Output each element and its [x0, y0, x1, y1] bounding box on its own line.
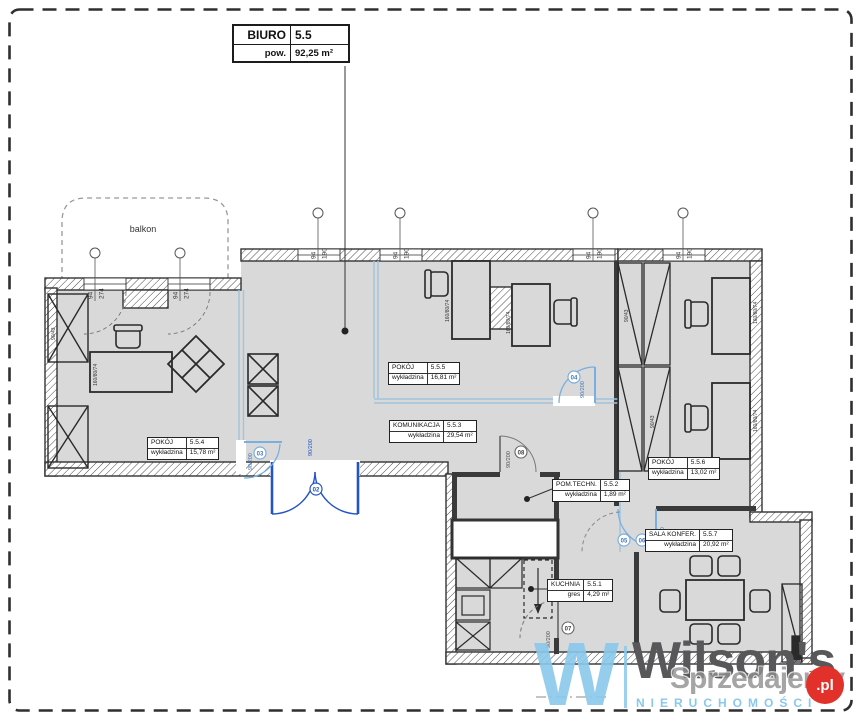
shaft — [452, 520, 558, 558]
room-label-554: POKÓJ 5.5.4 wykładzina 15,78 m² — [147, 437, 219, 460]
svg-text:160/80/74: 160/80/74 — [753, 302, 759, 324]
title-area-label: pow. — [234, 45, 291, 61]
watermark-monogram: W — [534, 630, 619, 720]
watermark-divider — [624, 646, 627, 708]
svg-text:90/43: 90/43 — [650, 415, 656, 428]
svg-text:190: 190 — [687, 248, 694, 259]
room-label-551: KUCHNIA 5.5.1 gres 4,29 m² — [547, 579, 613, 602]
svg-text:90/43: 90/43 — [624, 309, 630, 322]
balcony: balkon — [62, 198, 228, 290]
svg-text:160/80/74: 160/80/74 — [506, 312, 512, 334]
title-area-value: 92,25 m² — [291, 45, 348, 61]
room-label-556: POKÓJ 5.5.6 wykładzina 13,02 m² — [648, 457, 720, 480]
room-label-553: KOMUNIKACJA 5.5.3 wykładzina 29,54 m² — [389, 420, 477, 443]
room-label-555: POKÓJ 5.5.5 wykładzina 16,81 m² — [388, 362, 460, 385]
svg-text:94: 94 — [173, 291, 180, 299]
svg-text:90/200: 90/200 — [248, 453, 254, 470]
svg-text:190: 190 — [322, 248, 329, 259]
svg-text:08: 08 — [518, 451, 525, 457]
svg-text:190: 190 — [404, 248, 411, 259]
svg-text:160/80/74: 160/80/74 — [93, 364, 99, 386]
svg-text:90/200: 90/200 — [506, 451, 512, 468]
svg-text:160/80/74: 160/80/74 — [753, 410, 759, 432]
room-label-557: SALA KONFER. 5.5.7 wykładzina 20,92 m² — [645, 529, 733, 552]
title-name: BIURO — [234, 26, 291, 45]
svg-text:90/200: 90/200 — [580, 381, 586, 398]
svg-text:90/200: 90/200 — [308, 439, 314, 456]
svg-text:94: 94 — [586, 251, 593, 259]
svg-text:274: 274 — [184, 288, 191, 299]
balcony-label: balkon — [130, 224, 157, 234]
title-number: 5.5 — [291, 26, 348, 45]
svg-text:04: 04 — [571, 376, 578, 382]
floor-plan-page: balkon — [0, 0, 861, 720]
svg-text:90/43: 90/43 — [51, 327, 57, 340]
svg-text:274: 274 — [99, 288, 106, 299]
svg-text:190: 190 — [597, 248, 604, 259]
svg-text:94: 94 — [88, 291, 95, 299]
svg-text:05: 05 — [621, 539, 628, 545]
svg-text:160/80/74: 160/80/74 — [445, 300, 451, 322]
svg-text:94: 94 — [393, 251, 400, 259]
room-label-552: POM.TECHN. 5.5.2 wykładzina 1,89 m² — [552, 479, 630, 502]
svg-text:03: 03 — [257, 452, 264, 458]
title-box: BIURO 5.5 pow. 92,25 m² — [232, 24, 350, 63]
svg-text:94: 94 — [676, 251, 683, 259]
floor-plan-drawing: balkon — [0, 0, 861, 720]
watermark-pl-badge: .pl — [806, 666, 844, 704]
svg-text:94: 94 — [311, 251, 318, 259]
svg-text:02: 02 — [313, 488, 320, 494]
watermark-subtitle: NIERUCHOMOŚCI — [636, 696, 817, 710]
